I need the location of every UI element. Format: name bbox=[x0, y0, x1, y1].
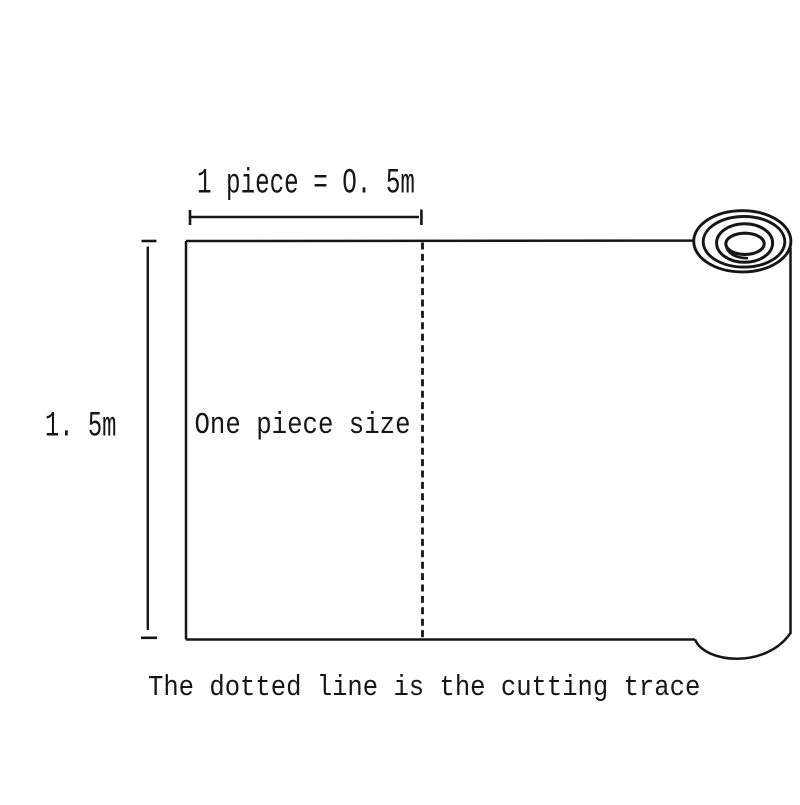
svg-text:1. 5m: 1. 5m bbox=[45, 406, 116, 446]
svg-text:1 piece = O. 5m: 1 piece = O. 5m bbox=[197, 165, 415, 205]
svg-text:One piece size: One piece size bbox=[195, 407, 411, 443]
svg-text:The dotted line is the cutting: The dotted line is the cutting trace bbox=[148, 672, 700, 705]
